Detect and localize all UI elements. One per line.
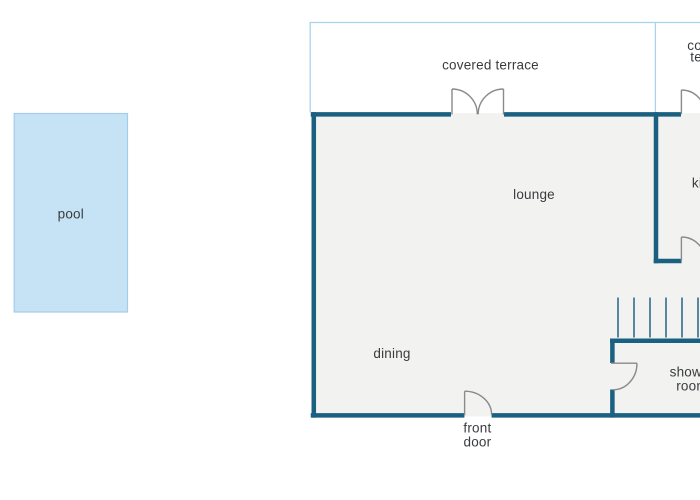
svg-text:dining: dining (373, 346, 410, 361)
svg-text:front: front (463, 421, 491, 436)
svg-text:kitchen: kitchen (692, 176, 700, 191)
svg-text:terrace: terrace (690, 50, 700, 65)
svg-text:pool: pool (58, 207, 84, 222)
svg-text:covered terrace: covered terrace (442, 58, 539, 73)
svg-text:shower: shower (670, 365, 700, 380)
svg-text:door: door (463, 435, 491, 450)
svg-text:room: room (676, 379, 700, 394)
svg-text:lounge: lounge (513, 187, 555, 202)
